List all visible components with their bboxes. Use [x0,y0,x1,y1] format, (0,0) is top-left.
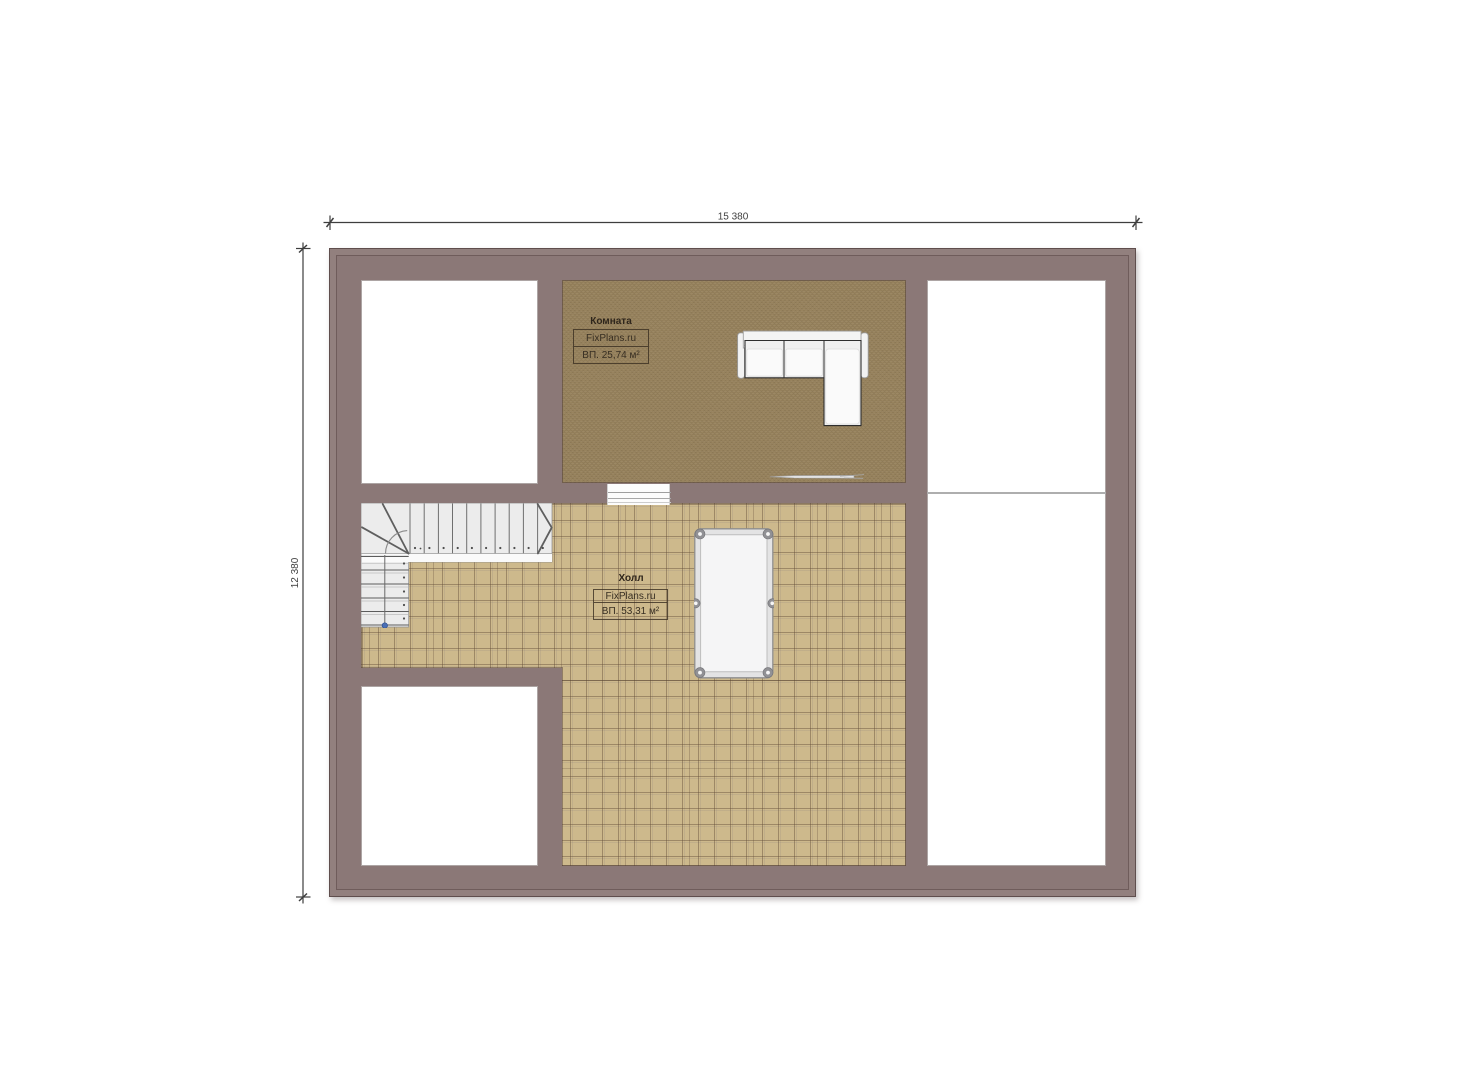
svg-text:12 380: 12 380 [290,557,301,588]
svg-text:15 380: 15 380 [718,212,749,223]
